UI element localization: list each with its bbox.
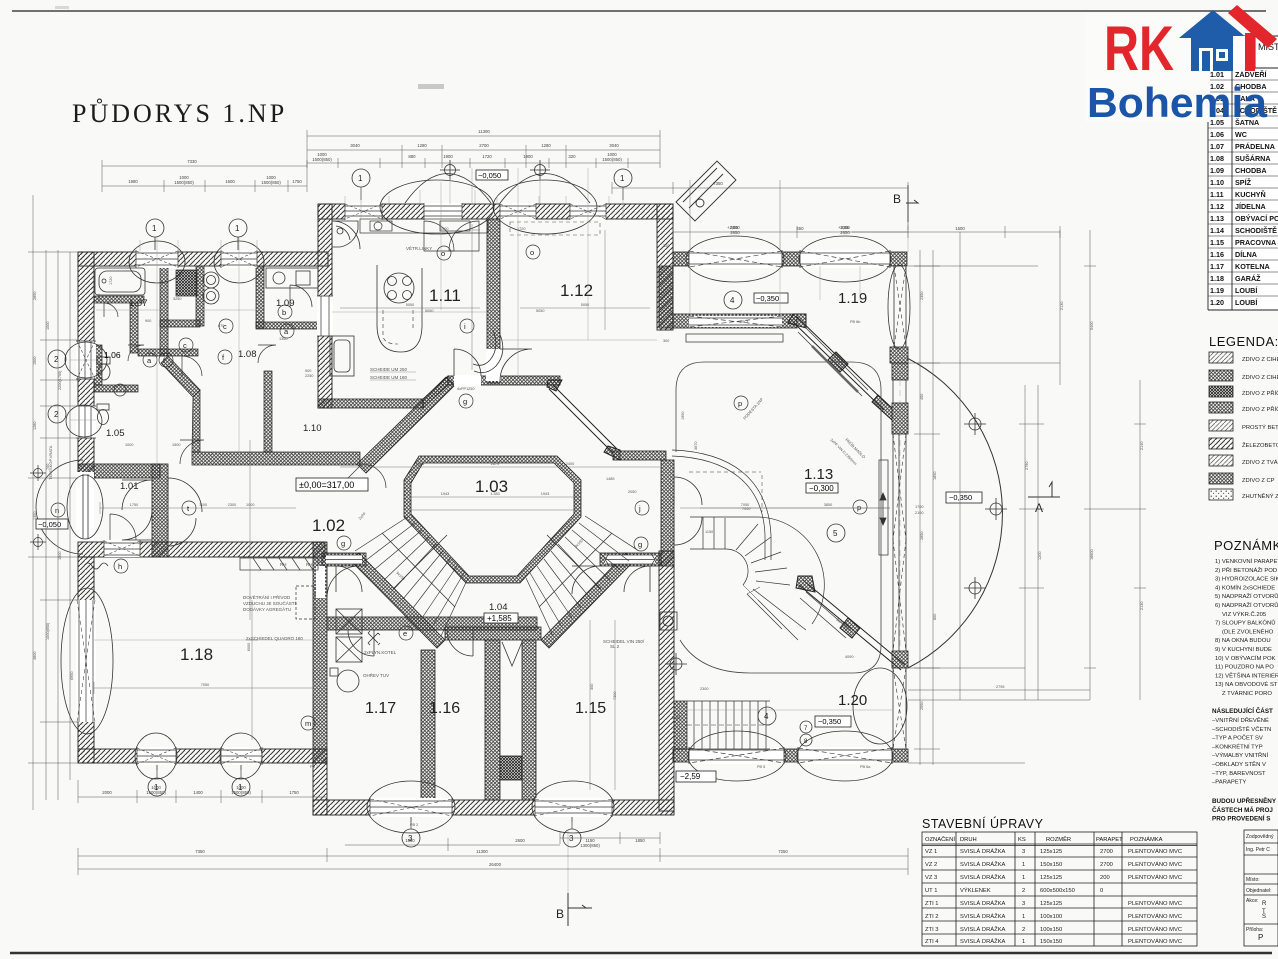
svg-text:ZDIVO Z CP: ZDIVO Z CP xyxy=(1242,478,1275,484)
svg-text:2200(1700): 2200(1700) xyxy=(58,370,62,390)
svg-text:2) PŘI BETONÁŽI POD: 2) PŘI BETONÁŽI POD xyxy=(1215,566,1277,574)
svg-text:300: 300 xyxy=(663,244,669,248)
svg-text:LOUBÍ: LOUBÍ xyxy=(1235,286,1258,295)
svg-text:18600: 18600 xyxy=(1090,549,1094,560)
svg-text:–TYP A POČET SV: –TYP A POČET SV xyxy=(1212,735,1263,742)
svg-text:JÍDELNA: JÍDELNA xyxy=(1235,202,1266,211)
svg-text:1: 1 xyxy=(1022,875,1025,881)
svg-text:4) KOMÍN 2xSCHIEDE: 4) KOMÍN 2xSCHIEDE xyxy=(1215,584,1275,591)
svg-text:KOTELNA: KOTELNA xyxy=(1235,262,1270,271)
svg-text:DOVĚTRÁNÍ I PŘÍVOD: DOVĚTRÁNÍ I PŘÍVOD xyxy=(243,593,291,600)
svg-text:1.06: 1.06 xyxy=(1210,130,1224,139)
svg-text:1720: 1720 xyxy=(109,277,113,285)
svg-text:1700: 1700 xyxy=(915,505,923,509)
svg-text:Objednatel:: Objednatel: xyxy=(1246,888,1272,894)
svg-text:2679: 2679 xyxy=(491,462,499,466)
svg-text:1350: 1350 xyxy=(33,512,37,520)
svg-text:1.15: 1.15 xyxy=(1210,238,1224,247)
svg-text:5) NADPRAŽÍ OTVORŮ: 5) NADPRAŽÍ OTVORŮ xyxy=(1215,592,1278,600)
svg-text:5050: 5050 xyxy=(581,303,589,307)
svg-text:0.02: 0.02 xyxy=(672,715,681,720)
svg-text:ZDIVO Z TVÁR: ZDIVO Z TVÁR xyxy=(1242,459,1278,466)
svg-text:9x150: 9x150 xyxy=(395,571,405,581)
svg-text:e: e xyxy=(403,629,407,638)
svg-text:2250: 2250 xyxy=(305,374,313,378)
svg-text:2400: 2400 xyxy=(416,462,424,466)
svg-text:1400: 1400 xyxy=(193,790,203,795)
svg-text:n: n xyxy=(55,506,59,515)
svg-text:VÝKLENEK: VÝKLENEK xyxy=(960,887,991,894)
svg-text:1.07: 1.07 xyxy=(129,298,148,309)
svg-text:300: 300 xyxy=(663,339,669,343)
svg-text:PLENTOVÁNO MVC: PLENTOVÁNO MVC xyxy=(1128,861,1182,868)
svg-text:PLENTOVÁNO MVC: PLENTOVÁNO MVC xyxy=(1128,874,1182,881)
svg-text:1943: 1943 xyxy=(441,492,449,496)
svg-text:3: 3 xyxy=(569,834,574,843)
svg-text:SUŠÁRNA: SUŠÁRNA xyxy=(1235,154,1271,163)
svg-text:1500(850): 1500(850) xyxy=(231,790,251,795)
svg-text:2400: 2400 xyxy=(566,462,574,466)
svg-text:2000: 2000 xyxy=(102,790,112,795)
svg-text:2130: 2130 xyxy=(1060,302,1064,310)
svg-text:1950: 1950 xyxy=(681,412,685,420)
svg-text:2795: 2795 xyxy=(996,685,1004,689)
svg-text:VZDUCHU JE SOUČÁSTÍ: VZDUCHU JE SOUČÁSTÍ xyxy=(243,600,297,606)
svg-text:PLENTOVÁNO MVC: PLENTOVÁNO MVC xyxy=(1128,900,1182,907)
svg-text:7) SLOUPY BALKÓNŮ: 7) SLOUPY BALKÓNŮ xyxy=(1215,620,1275,627)
svg-text:GARÁŽ: GARÁŽ xyxy=(1235,274,1261,283)
svg-text:PB 2: PB 2 xyxy=(310,765,318,769)
svg-text:o: o xyxy=(530,248,534,257)
svg-text:Akce:: Akce: xyxy=(1246,898,1259,904)
svg-text:3850: 3850 xyxy=(824,503,832,507)
svg-text:±0,00=317,00: ±0,00=317,00 xyxy=(299,480,354,490)
svg-text:OBÝVACÍ POKOJ: OBÝVACÍ POKOJ xyxy=(1235,214,1278,223)
svg-text:OZNAČENÍ: OZNAČENÍ xyxy=(925,836,955,843)
svg-text:UT 1: UT 1 xyxy=(925,888,937,894)
svg-text:–VÝMALBY VNITŘNÍ: –VÝMALBY VNITŘNÍ xyxy=(1212,751,1269,759)
svg-text:SL 2: SL 2 xyxy=(610,644,620,649)
svg-text:900: 900 xyxy=(145,319,151,323)
svg-text:1000: 1000 xyxy=(246,503,254,507)
svg-text:7250: 7250 xyxy=(778,849,788,854)
svg-text:2790: 2790 xyxy=(1025,462,1029,470)
svg-text:1485: 1485 xyxy=(606,477,614,481)
svg-text:1150: 1150 xyxy=(705,530,713,534)
svg-text:1500: 1500 xyxy=(58,552,62,560)
svg-text:o: o xyxy=(441,249,445,258)
svg-text:ZTI 2: ZTI 2 xyxy=(925,914,939,920)
svg-text:ZÁDVEŘÍ: ZÁDVEŘÍ xyxy=(1235,70,1268,79)
svg-text:1.11: 1.11 xyxy=(429,286,461,305)
svg-text:1.14: 1.14 xyxy=(1210,226,1224,235)
svg-text:2xSCHIEDEL QUADRO 180: 2xSCHIEDEL QUADRO 180 xyxy=(246,636,303,641)
svg-text:2300: 2300 xyxy=(700,687,708,691)
svg-text:4: 4 xyxy=(730,296,735,305)
svg-text:SVISLÁ DRÁŽKA: SVISLÁ DRÁŽKA xyxy=(960,925,1006,933)
svg-text:5050: 5050 xyxy=(406,303,414,307)
svg-text:PLENTOVÁNO MVC: PLENTOVÁNO MVC xyxy=(1128,926,1182,933)
svg-text:6950: 6950 xyxy=(70,672,74,680)
svg-text:ZDIVO Z PŘÍČ: ZDIVO Z PŘÍČ xyxy=(1242,405,1278,413)
svg-text:1750: 1750 xyxy=(289,790,299,795)
svg-text:2xPLYN.KOTEL: 2xPLYN.KOTEL xyxy=(364,650,397,655)
svg-text:1.08: 1.08 xyxy=(238,349,257,360)
svg-text:i: i xyxy=(464,322,466,331)
svg-text:450: 450 xyxy=(796,226,804,231)
svg-text:Z TVÁRNIC PORO: Z TVÁRNIC PORO xyxy=(1222,690,1272,697)
svg-text:PB 6b: PB 6b xyxy=(850,320,860,324)
svg-text:7: 7 xyxy=(804,726,808,732)
svg-text:VZ 3: VZ 3 xyxy=(925,875,937,881)
svg-text:3040: 3040 xyxy=(350,143,360,148)
svg-text:320: 320 xyxy=(568,154,576,159)
svg-text:1000: 1000 xyxy=(46,322,50,330)
svg-text:–KONKRÉTNÍ TYP: –KONKRÉTNÍ TYP xyxy=(1212,743,1263,750)
svg-text:1500: 1500 xyxy=(33,357,37,365)
svg-text:2100: 2100 xyxy=(915,511,923,515)
svg-text:1900: 1900 xyxy=(440,227,448,231)
svg-text:1.12: 1.12 xyxy=(1210,202,1224,211)
svg-text:880: 880 xyxy=(408,154,416,159)
svg-text:–SCHODIŠTĚ VČETN: –SCHODIŠTĚ VČETN xyxy=(1212,725,1271,733)
svg-text:7300: 7300 xyxy=(613,692,617,700)
svg-text:a: a xyxy=(147,356,152,365)
svg-text:1500(850): 1500(850) xyxy=(602,157,622,162)
svg-text:SVISLÁ DRÁŽKA: SVISLÁ DRÁŽKA xyxy=(960,937,1006,945)
svg-text:1.06: 1.06 xyxy=(104,350,121,360)
svg-text:450: 450 xyxy=(920,394,924,400)
svg-text:6) NADPRAŽÍ OTVORŮ: 6) NADPRAŽÍ OTVORŮ xyxy=(1215,601,1278,609)
svg-text:2700: 2700 xyxy=(479,143,489,148)
svg-text:1850: 1850 xyxy=(933,472,937,480)
svg-text:c: c xyxy=(183,341,187,350)
svg-text:ZDIVO Z CIHE: ZDIVO Z CIHE xyxy=(1242,357,1278,363)
svg-text:SVISLÁ DRÁŽKA: SVISLÁ DRÁŽKA xyxy=(960,860,1006,868)
svg-text:SVISLÁ DRÁŽKA: SVISLÁ DRÁŽKA xyxy=(960,912,1006,920)
svg-text:p: p xyxy=(738,399,742,408)
svg-text:1.19: 1.19 xyxy=(1210,286,1224,295)
svg-text:125x125: 125x125 xyxy=(1040,849,1062,855)
svg-text:1900: 1900 xyxy=(523,154,533,159)
svg-text:9) V KUCHYNI BUDE: 9) V KUCHYNI BUDE xyxy=(1215,647,1272,653)
svg-text:−0,350: −0,350 xyxy=(949,493,972,502)
svg-text:1600: 1600 xyxy=(225,179,235,184)
svg-text:SCHEIDE UM 250: SCHEIDE UM 250 xyxy=(370,367,408,372)
svg-text:ROZMĚR: ROZMĚR xyxy=(1046,835,1071,843)
svg-text:f: f xyxy=(222,353,225,362)
svg-text:1.13: 1.13 xyxy=(1210,214,1224,223)
svg-text:PLENTOVÁNO MVC: PLENTOVÁNO MVC xyxy=(1128,848,1182,855)
svg-text:1720: 1720 xyxy=(482,154,492,159)
svg-text:1750: 1750 xyxy=(292,179,302,184)
svg-text:100x100: 100x100 xyxy=(1040,914,1062,920)
svg-text:10) V OBÝVACÍM POK: 10) V OBÝVACÍM POK xyxy=(1215,655,1276,662)
svg-text:670: 670 xyxy=(218,324,224,328)
svg-text:3670: 3670 xyxy=(694,442,698,450)
svg-text:1: 1 xyxy=(1022,914,1025,920)
svg-text:1.16: 1.16 xyxy=(429,700,460,717)
svg-text:200: 200 xyxy=(1100,875,1110,881)
svg-text:1200: 1200 xyxy=(1038,552,1042,560)
svg-text:1.17: 1.17 xyxy=(1210,262,1224,271)
svg-text:1300(850): 1300(850) xyxy=(580,843,600,848)
svg-text:g: g xyxy=(341,539,345,548)
svg-text:1: 1 xyxy=(358,174,363,183)
svg-text:3: 3 xyxy=(1022,901,1025,907)
svg-text:5: 5 xyxy=(833,529,838,538)
svg-text:300: 300 xyxy=(590,684,594,690)
svg-text:1.20: 1.20 xyxy=(838,692,867,709)
svg-text:Zodpovědný: Zodpovědný xyxy=(1246,834,1274,840)
svg-text:1980: 1980 xyxy=(128,179,138,184)
svg-text:DRUH: DRUH xyxy=(960,837,977,843)
svg-text:5050: 5050 xyxy=(536,309,544,313)
svg-text:VĚTR.LINKY: VĚTR.LINKY xyxy=(406,244,432,251)
svg-text:VIZ VÝKR.Č.205: VIZ VÝKR.Č.205 xyxy=(1222,611,1267,618)
svg-text:SVISLÁ DRÁŽKA: SVISLÁ DRÁŽKA xyxy=(960,847,1006,855)
svg-text:1.09: 1.09 xyxy=(1210,166,1224,175)
svg-text:3250: 3250 xyxy=(173,297,181,301)
svg-text:2: 2 xyxy=(1022,888,1025,894)
svg-text:125x125: 125x125 xyxy=(1040,901,1062,907)
svg-text:NÁSLEDUJÍCÍ ČÁST: NÁSLEDUJÍCÍ ČÁST xyxy=(1212,706,1273,715)
svg-text:–OBKLADY STĚN V: –OBKLADY STĚN V xyxy=(1212,760,1266,768)
svg-text:1280: 1280 xyxy=(541,143,551,148)
svg-text:1850: 1850 xyxy=(405,838,415,843)
svg-text:A: A xyxy=(1035,501,1043,515)
svg-text:1500: 1500 xyxy=(955,226,965,231)
svg-text:11300: 11300 xyxy=(476,849,488,854)
svg-text:26400: 26400 xyxy=(489,862,502,867)
svg-text:1850: 1850 xyxy=(635,838,645,843)
svg-text:1: 1 xyxy=(235,224,240,233)
svg-text:1000: 1000 xyxy=(125,443,133,447)
svg-text:1: 1 xyxy=(1022,939,1025,945)
svg-text:1100: 1100 xyxy=(199,503,207,507)
svg-text:7050: 7050 xyxy=(742,507,750,511)
svg-text:ZDIVO Z PŘÍČ: ZDIVO Z PŘÍČ xyxy=(1242,389,1278,397)
svg-text:1) VENKOVNÍ PARAPET: 1) VENKOVNÍ PARAPET xyxy=(1215,558,1278,565)
svg-text:DÍLNA: DÍLNA xyxy=(1235,250,1257,259)
svg-text:1720: 1720 xyxy=(517,227,525,231)
svg-text:PB 2: PB 2 xyxy=(410,823,418,827)
svg-text:SPÍŽ: SPÍŽ xyxy=(1235,178,1252,187)
svg-text:1.10: 1.10 xyxy=(1210,178,1224,187)
svg-text:7050: 7050 xyxy=(201,683,209,687)
svg-text:1.15: 1.15 xyxy=(575,700,606,717)
svg-text:Místo:: Místo: xyxy=(1246,877,1260,883)
svg-text:1943: 1943 xyxy=(541,492,549,496)
svg-text:VZ 1: VZ 1 xyxy=(925,849,937,855)
svg-text:WC: WC xyxy=(1235,130,1247,139)
svg-text:1.20: 1.20 xyxy=(1210,298,1224,307)
svg-text:SVISLÁ DRÁŽKA: SVISLÁ DRÁŽKA xyxy=(960,873,1006,881)
svg-text:–VNITŘNÍ DŘEVĚNÉ: –VNITŘNÍ DŘEVĚNÉ xyxy=(1212,716,1269,724)
svg-text:5400: 5400 xyxy=(1090,322,1094,330)
svg-text:2850: 2850 xyxy=(33,292,37,300)
svg-text:1000(850): 1000(850) xyxy=(46,622,50,640)
svg-text:PRACOVNA: PRACOVNA xyxy=(1235,238,1276,247)
svg-text:1.383: 1.383 xyxy=(490,492,500,496)
svg-text:1500(850): 1500(850) xyxy=(146,790,166,795)
svg-text:150x150: 150x150 xyxy=(1040,939,1062,945)
svg-text:BUDOU UPŘESNĚNY: BUDOU UPŘESNĚNY xyxy=(1212,796,1277,805)
svg-text:1.10: 1.10 xyxy=(303,423,322,434)
svg-text:RK: RK xyxy=(1104,14,1174,84)
svg-text:ZHUTNĚNÝ ZÁ: ZHUTNĚNÝ ZÁ xyxy=(1242,492,1278,500)
svg-text:−0,350: −0,350 xyxy=(756,294,779,303)
svg-text:1: 1 xyxy=(620,174,625,183)
svg-text:−0,300: −0,300 xyxy=(809,484,834,493)
svg-text:h: h xyxy=(118,562,122,571)
svg-text:STAVEBNÍ ÚPRAVY: STAVEBNÍ ÚPRAVY xyxy=(922,816,1044,831)
svg-text:7350: 7350 xyxy=(713,181,723,186)
svg-text:7330: 7330 xyxy=(187,159,197,164)
svg-text:PB 6a: PB 6a xyxy=(860,765,871,769)
svg-text:125x125: 125x125 xyxy=(1040,875,1062,881)
svg-text:S: S xyxy=(1262,914,1266,920)
svg-text:PB 3: PB 3 xyxy=(740,320,748,324)
svg-text:ŽELEZOBETON: ŽELEZOBETON xyxy=(1242,441,1278,449)
svg-text:2850: 2850 xyxy=(920,532,924,540)
svg-text:ZTI 1: ZTI 1 xyxy=(925,901,939,907)
svg-text:1.02: 1.02 xyxy=(312,516,345,535)
svg-text:1.13: 1.13 xyxy=(804,466,833,483)
svg-text:1.16: 1.16 xyxy=(1210,250,1224,259)
svg-text:1.18: 1.18 xyxy=(180,645,213,664)
svg-text:1.04: 1.04 xyxy=(489,602,508,613)
svg-text:4800: 4800 xyxy=(33,652,37,660)
svg-text:B: B xyxy=(556,907,564,921)
svg-text:PROSTÝ BETO: PROSTÝ BETO xyxy=(1242,424,1278,431)
svg-text:8: 8 xyxy=(804,739,808,745)
svg-text:7350: 7350 xyxy=(195,849,205,854)
svg-text:1.17: 1.17 xyxy=(365,700,396,717)
svg-text:VZ 2: VZ 2 xyxy=(925,862,937,868)
svg-text:3: 3 xyxy=(1022,849,1025,855)
svg-text:1: 1 xyxy=(1022,862,1025,868)
svg-text:ZTI 4: ZTI 4 xyxy=(925,939,939,945)
svg-text:13) NA OBVODOVÉ ST: 13) NA OBVODOVÉ ST xyxy=(1215,681,1278,688)
svg-text:ZDIVO Z CIHE: ZDIVO Z CIHE xyxy=(1242,375,1278,381)
svg-text:R: R xyxy=(1262,901,1267,907)
svg-text:−0,350: −0,350 xyxy=(818,717,841,726)
svg-text:Ing. Petr C: Ing. Petr C xyxy=(1246,847,1270,853)
svg-text:1: 1 xyxy=(152,224,157,233)
svg-text:POZNÁMKA:: POZNÁMKA: xyxy=(1214,538,1278,553)
svg-text:B: B xyxy=(893,192,901,206)
svg-text:1500(850): 1500(850) xyxy=(312,157,332,162)
svg-text:5050: 5050 xyxy=(425,309,433,313)
svg-text:1.05: 1.05 xyxy=(106,428,125,439)
svg-text:+1,585: +1,585 xyxy=(487,614,512,623)
svg-text:Bohemia: Bohemia xyxy=(1087,79,1268,126)
svg-text:PLENTOVÁNO MVC: PLENTOVÁNO MVC xyxy=(1128,938,1182,945)
svg-text:800: 800 xyxy=(933,614,937,620)
svg-text:LOUBÍ: LOUBÍ xyxy=(1235,298,1258,307)
svg-text:1500: 1500 xyxy=(172,443,180,447)
svg-text:PRO PROVEDENÍ S: PRO PROVEDENÍ S xyxy=(1212,814,1270,823)
svg-text:2130: 2130 xyxy=(1140,602,1144,610)
svg-text:LEGENDA:: LEGENDA: xyxy=(1209,334,1278,349)
svg-text:4xPP1250: 4xPP1250 xyxy=(457,387,475,391)
svg-text:m: m xyxy=(305,719,311,728)
svg-text:1.11: 1.11 xyxy=(1210,190,1224,199)
svg-text:−0,050: −0,050 xyxy=(478,171,501,180)
svg-text:150x150: 150x150 xyxy=(1040,862,1062,868)
svg-text:POZNÁMKA: POZNÁMKA xyxy=(1130,836,1163,843)
svg-text:ZTI 3: ZTI 3 xyxy=(925,927,939,933)
svg-text:6000: 6000 xyxy=(247,643,251,651)
svg-text:2: 2 xyxy=(1022,927,1025,933)
svg-text:PŮDORYS 1.NP: PŮDORYS 1.NP xyxy=(72,99,287,128)
svg-text:j: j xyxy=(638,504,641,513)
svg-text:3040: 3040 xyxy=(609,143,619,148)
svg-text:2xPF: 2xPF xyxy=(358,511,368,521)
svg-text:1.01: 1.01 xyxy=(120,481,139,492)
svg-text:SCHODIŠTĚ: SCHODIŠTĚ xyxy=(1235,226,1277,235)
svg-text:–TYP, BAREVNOST: –TYP, BAREVNOST xyxy=(1212,771,1266,777)
svg-text:t: t xyxy=(187,504,190,513)
svg-text:3) HYDROIZOLACE SIK: 3) HYDROIZOLACE SIK xyxy=(1215,577,1278,583)
svg-text:600x500x150: 600x500x150 xyxy=(1040,888,1075,894)
svg-text:1.18: 1.18 xyxy=(1210,274,1224,283)
svg-text:OHŘEV TUV: OHŘEV TUV xyxy=(363,671,389,678)
svg-text:2350: 2350 xyxy=(920,292,924,300)
svg-text:TELESKOP.VRATA: TELESKOP.VRATA xyxy=(48,445,53,480)
svg-text:1500(850): 1500(850) xyxy=(261,180,281,185)
svg-text:PRÁDELNA: PRÁDELNA xyxy=(1235,142,1275,151)
svg-text:2600: 2600 xyxy=(515,838,525,843)
svg-text:2140: 2140 xyxy=(1140,442,1144,450)
svg-text:g: g xyxy=(638,540,642,549)
svg-text:865: 865 xyxy=(97,294,101,300)
svg-text:1350: 1350 xyxy=(279,337,287,341)
svg-text:1500(850): 1500(850) xyxy=(174,180,194,185)
svg-text:1750: 1750 xyxy=(130,503,138,507)
svg-text:PLENTOVÁNO MVC: PLENTOVÁNO MVC xyxy=(1128,913,1182,920)
svg-text:2300: 2300 xyxy=(228,503,236,507)
svg-text:900: 900 xyxy=(305,369,311,373)
svg-text:2650: 2650 xyxy=(840,230,850,235)
svg-text:KS: KS xyxy=(1018,837,1026,843)
svg-text:RH: RH xyxy=(280,562,287,567)
svg-text:p: p xyxy=(857,503,861,512)
svg-text:8) NA OKNA BUDOU: 8) NA OKNA BUDOU xyxy=(1215,638,1271,644)
svg-text:2700: 2700 xyxy=(1100,862,1113,868)
svg-text:9x150: 9x150 xyxy=(574,539,584,549)
svg-text:1.01: 1.01 xyxy=(1210,70,1224,79)
svg-text:−2,59: −2,59 xyxy=(680,772,701,781)
svg-text:0: 0 xyxy=(1100,888,1103,894)
svg-text:b: b xyxy=(282,308,286,317)
svg-text:4: 4 xyxy=(764,712,769,721)
svg-text:PARAPET: PARAPET xyxy=(1096,837,1123,843)
svg-text:−0,050: −0,050 xyxy=(38,520,61,529)
svg-text:1.07: 1.07 xyxy=(1210,142,1224,151)
svg-text:11) POUZDRO NA PO: 11) POUZDRO NA PO xyxy=(1215,665,1274,671)
svg-text:SVISLÁ DRÁŽKA: SVISLÁ DRÁŽKA xyxy=(960,899,1006,907)
svg-text:ČÁSTECH MÁ PROJ: ČÁSTECH MÁ PROJ xyxy=(1212,805,1273,814)
svg-text:(DLE ZVOLENÉHO: (DLE ZVOLENÉHO xyxy=(1222,628,1274,635)
svg-text:–PARAPETY: –PARAPETY xyxy=(1212,780,1246,786)
svg-text:RH: RH xyxy=(306,562,313,567)
svg-text:12) VĚTŠINA INTERIÉR: 12) VĚTŠINA INTERIÉR xyxy=(1215,671,1278,679)
svg-text:g: g xyxy=(463,397,467,406)
svg-text:4090: 4090 xyxy=(845,655,853,659)
svg-text:CHODBA: CHODBA xyxy=(1235,166,1267,175)
